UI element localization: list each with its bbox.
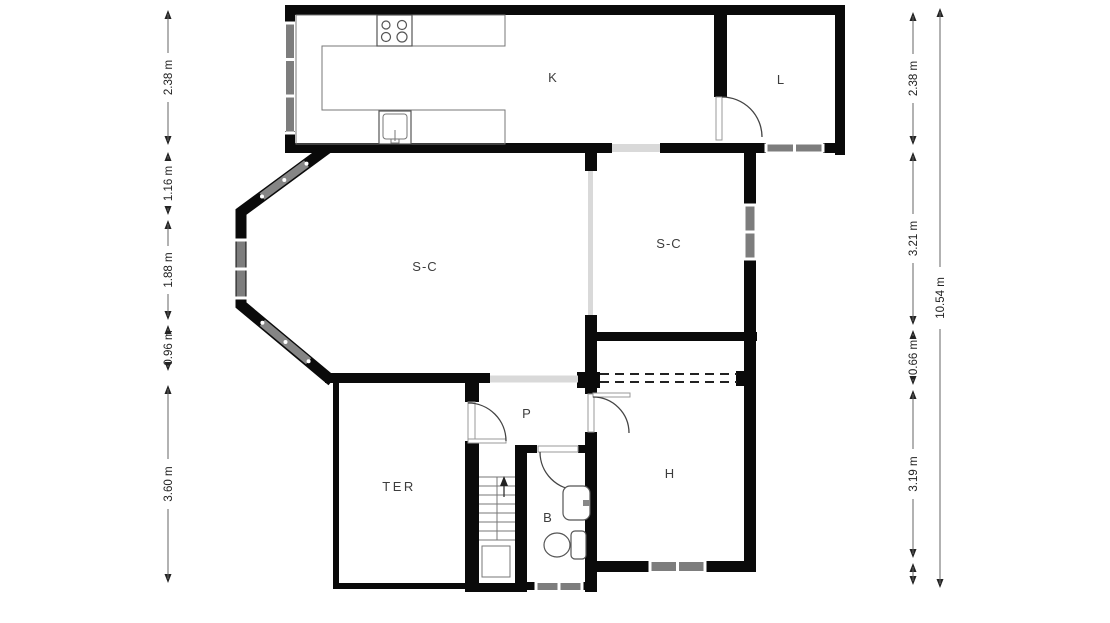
wall-openings — [490, 144, 660, 383]
door-leaf-laundry — [716, 97, 722, 140]
door-arc-bedroom — [593, 397, 629, 433]
door-arc-laundry — [722, 97, 762, 137]
dimension-label: 2.38 m — [163, 60, 175, 95]
dimension-label-overall: 10.54 m — [935, 277, 947, 319]
dimension-label: 0.66 m — [908, 340, 920, 375]
dimension-label: 3.19 m — [908, 456, 920, 491]
dimension-label: 0.96 m — [163, 330, 175, 365]
kitchen-sink — [379, 111, 411, 144]
dimension-label: 3.21 m — [908, 221, 920, 256]
door-leaf-terrace — [468, 439, 506, 443]
wardrobe-dashed — [600, 374, 737, 382]
dimension-arrows: 2.38 m 1.16 m 1.88 m 0.96 m 3.60 m 2.38 … — [163, 8, 947, 588]
dimension-label: 3.60 m — [163, 466, 175, 501]
room-label-bathroom: B — [543, 510, 553, 525]
door-leaf-bathroom — [538, 446, 578, 452]
stairs — [479, 476, 515, 577]
room-labels: K L S-C S-C P TER B H — [382, 70, 785, 525]
room-label-living-left: S-C — [412, 259, 437, 274]
room-label-kitchen: K — [548, 70, 558, 85]
floor-plan-canvas: K L S-C S-C P TER B H 2.38 m 1.16 m 1.88… — [0, 0, 1110, 623]
room-label-laundry: L — [777, 72, 785, 87]
toilet — [544, 531, 586, 559]
dimension-label: 1.16 m — [163, 166, 175, 201]
door-arc-bathroom — [540, 452, 578, 490]
windows — [236, 22, 825, 592]
room-label-bedroom: H — [665, 466, 675, 481]
dimension-label: 1.88 m — [163, 252, 175, 287]
walls — [241, 5, 845, 592]
bathroom-sink — [563, 486, 590, 520]
room-label-hall: P — [522, 406, 532, 421]
dimension-label: 2.38 m — [908, 61, 920, 96]
stove — [377, 15, 412, 46]
door-leaf-bedroom — [593, 393, 630, 397]
doors — [468, 97, 762, 490]
room-label-terrace: TER — [382, 479, 416, 494]
room-label-living-right: S-C — [656, 236, 681, 251]
floor-plan: K L S-C S-C P TER B H 2.38 m 1.16 m 1.88… — [0, 0, 1110, 623]
